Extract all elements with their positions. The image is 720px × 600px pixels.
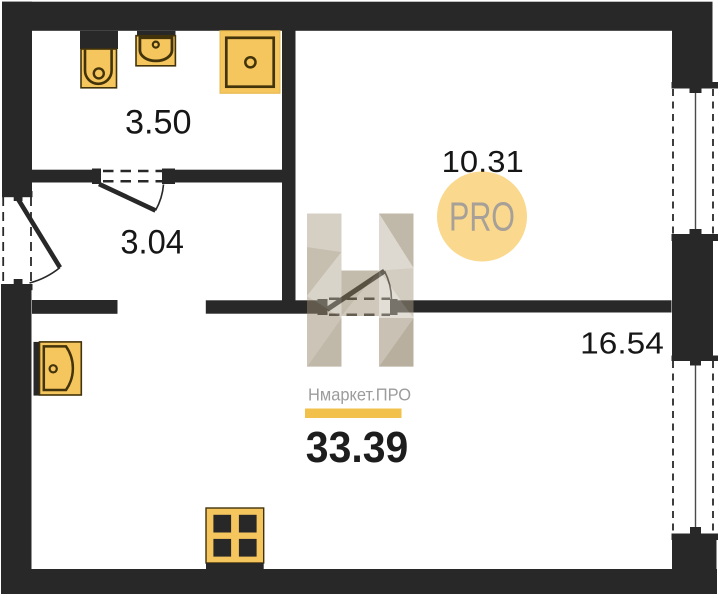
svg-text:33.39: 33.39: [306, 424, 409, 472]
svg-text:16.54: 16.54: [580, 326, 664, 361]
svg-text:3.50: 3.50: [125, 103, 192, 141]
svg-text:PRO: PRO: [449, 194, 515, 240]
svg-text:Нмаркет.ПРО: Нмаркет.ПРО: [308, 385, 411, 405]
svg-text:3.04: 3.04: [120, 224, 184, 262]
